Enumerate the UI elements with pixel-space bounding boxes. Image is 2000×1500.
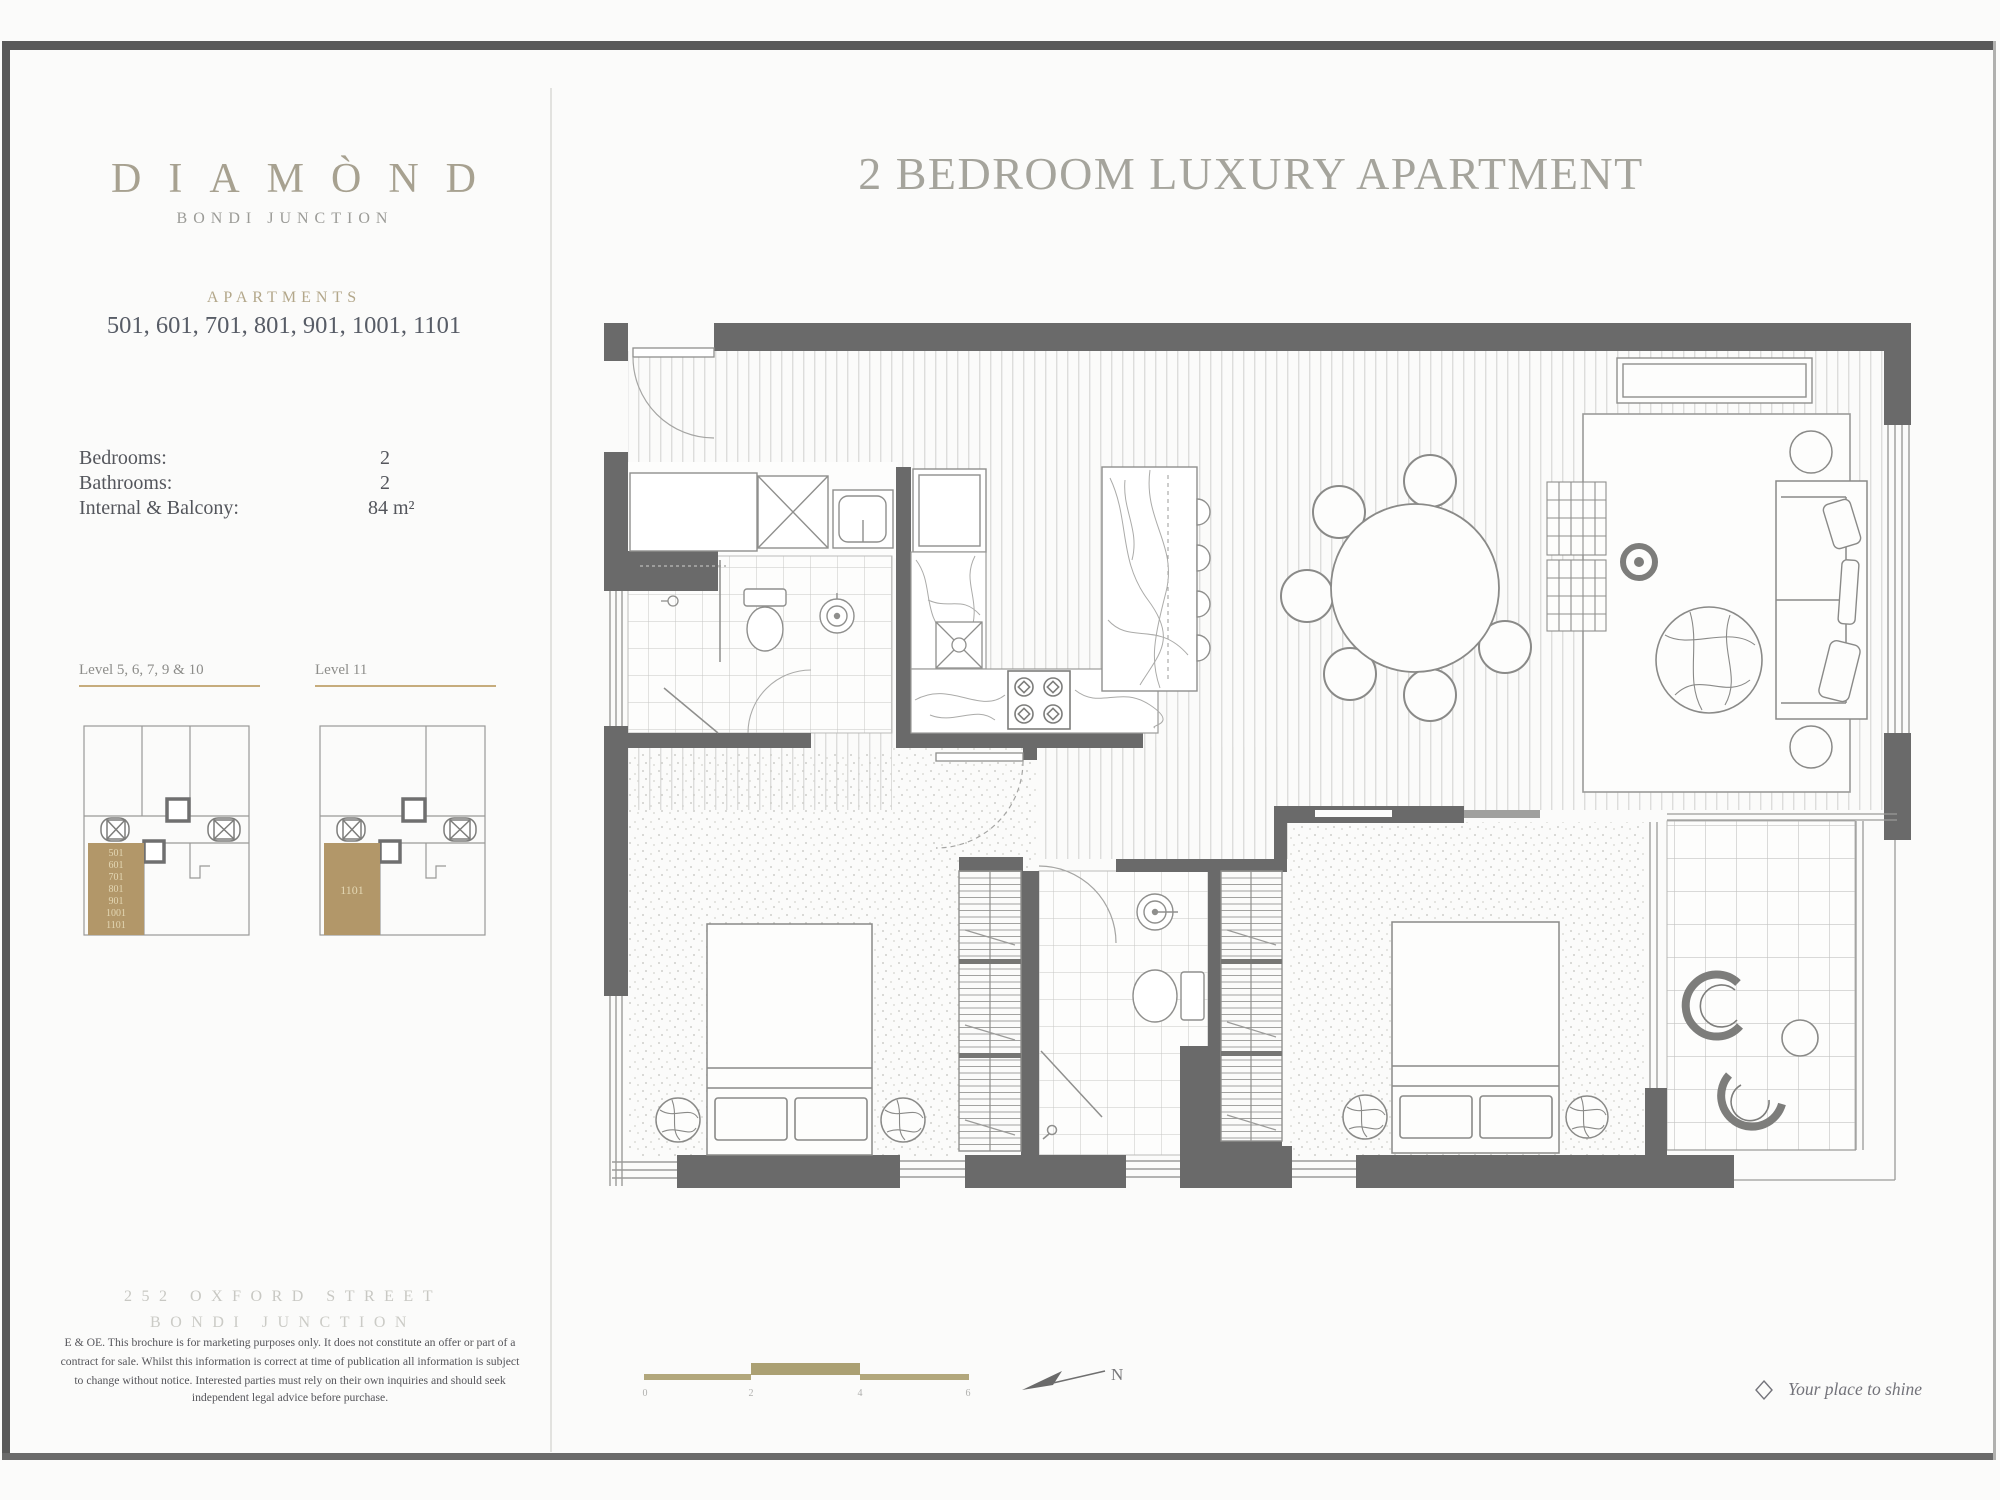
svg-text:6: 6 <box>966 1388 971 1399</box>
svg-text:to change without notice. Inte: to change without notice. Interested par… <box>74 1374 506 1387</box>
svg-text:2: 2 <box>749 1388 754 1399</box>
svg-text:Internal & Balcony:: Internal & Balcony: <box>79 497 239 519</box>
svg-text:BONDI JUNCTION: BONDI JUNCTION <box>150 1314 416 1331</box>
svg-text:2: 2 <box>380 447 390 469</box>
svg-text:independent legal advice befor: independent legal advice before purchase… <box>192 1391 388 1404</box>
svg-text:801: 801 <box>109 884 124 895</box>
svg-text:601: 601 <box>109 860 124 871</box>
svg-text:252 OXFORD STREET: 252 OXFORD STREET <box>124 1288 442 1305</box>
svg-text:501: 501 <box>109 848 124 859</box>
svg-text:Bedrooms:: Bedrooms: <box>79 447 167 469</box>
svg-text:701: 701 <box>109 872 124 883</box>
svg-text:BONDI JUNCTION: BONDI JUNCTION <box>177 210 394 227</box>
svg-text:Level 5, 6, 7, 9 & 10: Level 5, 6, 7, 9 & 10 <box>79 662 204 678</box>
svg-text:N: N <box>1111 1365 1123 1384</box>
svg-text:E & OE. This brochure is for m: E & OE. This brochure is for marketing p… <box>65 1336 517 1349</box>
svg-text:Bathrooms:: Bathrooms: <box>79 472 172 494</box>
svg-text:501, 601, 701, 801, 901, 1001: 501, 601, 701, 801, 901, 1001, 1101 <box>107 312 461 339</box>
svg-text:0: 0 <box>643 1388 648 1399</box>
svg-text:DIAMÒND: DIAMÒND <box>111 155 503 202</box>
svg-text:Your place to shine: Your place to shine <box>1788 1379 1922 1399</box>
svg-text:1101: 1101 <box>106 920 126 931</box>
svg-text:84 m²: 84 m² <box>368 497 415 519</box>
svg-text:contract for sale. Whilst this: contract for sale. Whilst this informati… <box>61 1355 520 1368</box>
svg-text:901: 901 <box>109 896 124 907</box>
svg-text:2 BEDROOM LUXURY APARTMENT: 2 BEDROOM LUXURY APARTMENT <box>858 148 1644 199</box>
svg-text:1101: 1101 <box>340 883 364 897</box>
svg-text:1001: 1001 <box>106 908 126 919</box>
svg-text:APARTMENTS: APARTMENTS <box>207 289 361 306</box>
svg-text:Level 11: Level 11 <box>315 662 367 678</box>
svg-text:2: 2 <box>380 472 390 494</box>
svg-text:4: 4 <box>858 1388 863 1399</box>
